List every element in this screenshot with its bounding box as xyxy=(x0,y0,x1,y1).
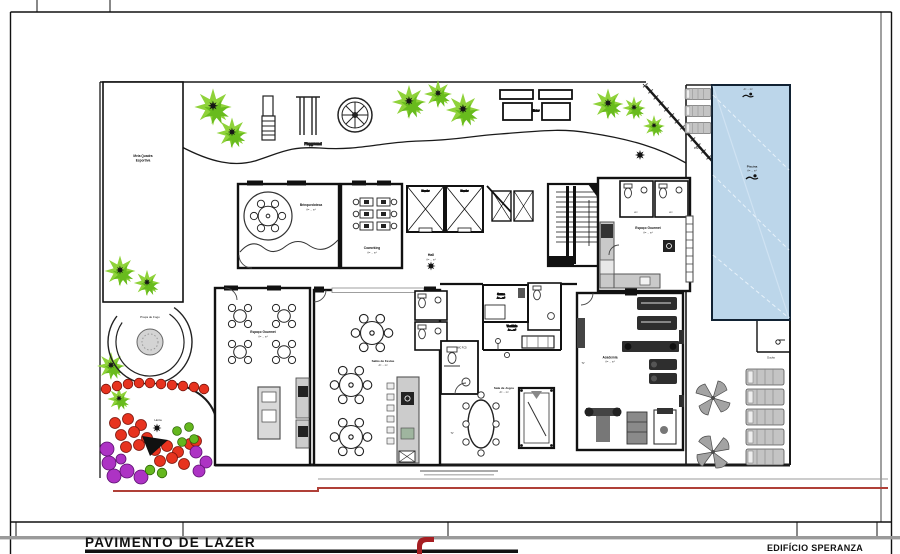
wc-accessible-label: WC PCD xyxy=(457,348,467,350)
pool-label: Piscina xyxy=(747,165,758,169)
changing-room-area: A= ... m² xyxy=(508,329,516,332)
pool-deck-label: Prainha xyxy=(694,147,703,150)
shrub-icon xyxy=(635,150,645,160)
drawing-title: PAVIMENTO DE LAZER xyxy=(85,535,256,550)
court-label-2: Esportiva xyxy=(136,159,151,163)
floor-plan-drawing: Meia Quadra Esportiva Playground Estar B… xyxy=(0,0,900,554)
gym-area: A= ... m² xyxy=(605,361,615,364)
game-room-area: A= ... m² xyxy=(499,391,508,394)
sprout-icon xyxy=(153,424,162,433)
changing-room-label: Vestiário xyxy=(507,324,518,328)
wc-label-1: WC xyxy=(634,212,638,214)
room-gourmet-upper: WC WC Espaço Gourmet A= ... m² xyxy=(598,178,693,291)
pool-top-area: A= ... m² xyxy=(743,88,752,91)
wc-label-2: WC xyxy=(669,212,673,214)
hall-plant-icon xyxy=(427,262,436,271)
pool-area-label: A= ... m² xyxy=(747,170,757,173)
room-brinquedoteca: Brinquedoteca A= ... m² xyxy=(238,181,339,269)
party-room-area: A= ... m² xyxy=(378,364,387,367)
project-name: EDIFÍCIO SPERANZA xyxy=(767,543,863,553)
brinquedoteca-label: Brinquedoteca xyxy=(300,203,323,207)
title-underline xyxy=(85,550,518,554)
game-room-label: Sala de Jogos xyxy=(494,386,515,390)
room-coworking: Coworking A= ... m² xyxy=(341,181,402,269)
elevator-label-2: Elevador xyxy=(461,191,469,193)
room-gourmet-lower: Espaço Gourmet A= ... m² xyxy=(215,286,310,466)
coworking-label: Coworking xyxy=(364,246,381,250)
shower-label: Ducha xyxy=(767,356,775,360)
gourmet-lower-label: Espaço Gourmet xyxy=(250,330,276,334)
gym-label: Academia xyxy=(602,356,617,360)
room-gym: Academia A= ... m² TV xyxy=(577,289,684,451)
wc-accessible: WC PCD xyxy=(441,341,478,394)
gourmet-upper-area: A= ... m² xyxy=(643,232,653,235)
tv-label-2: TV xyxy=(581,362,584,365)
court-label: Meia Quadra xyxy=(133,154,152,158)
playground-label: Playground xyxy=(304,142,321,146)
coworking-area: A= ... m² xyxy=(367,252,377,255)
hall-label: Hall xyxy=(428,253,435,257)
sauna-area: A= ... m² xyxy=(497,297,505,300)
elevator-label-1: Elevador xyxy=(422,191,430,193)
seating-label: Estar xyxy=(532,109,539,113)
party-room-label: Salão de Festas xyxy=(372,359,395,363)
brinquedoteca-area: A= ... m² xyxy=(306,209,316,212)
hall-area: A= ... m² xyxy=(426,259,436,262)
fire-plaza-label: Praça de Fogo xyxy=(140,315,160,319)
sauna-label: Sauna xyxy=(497,293,505,296)
tv-label-1: TV xyxy=(450,432,453,435)
gourmet-upper-label: Espaço Gourmet xyxy=(635,226,661,230)
gourmet-lower-area: A= ... m² xyxy=(258,336,268,339)
garden-label: Horta xyxy=(154,418,162,422)
